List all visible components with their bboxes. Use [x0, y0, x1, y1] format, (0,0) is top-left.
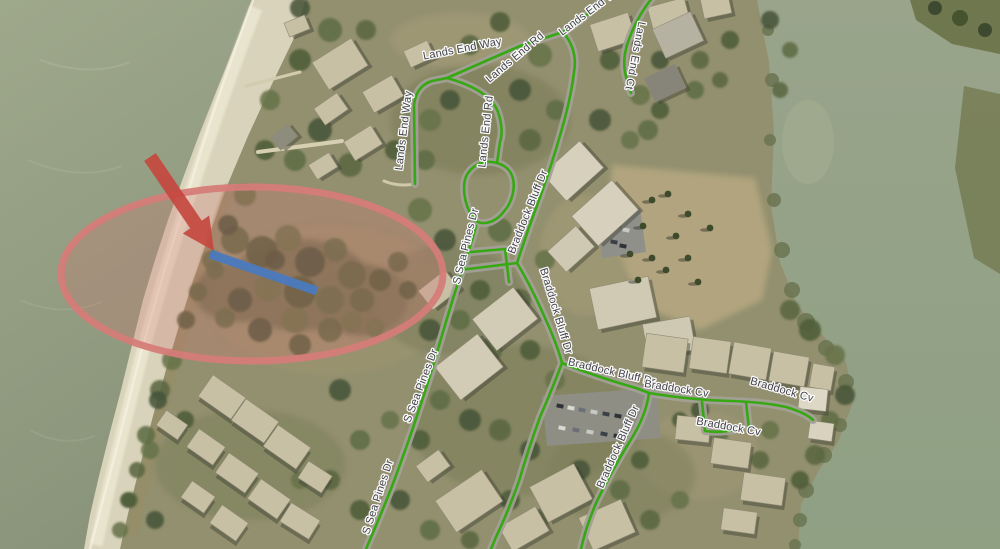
tree: [461, 531, 479, 549]
tree: [825, 345, 845, 365]
building: [729, 342, 772, 380]
tree: [761, 11, 779, 29]
tree: [129, 462, 145, 478]
tree: [610, 480, 630, 500]
map-canvas: Lands End Way Lands End Way Lands End Wa…: [0, 0, 1000, 549]
tree: [805, 445, 825, 465]
tree: [489, 419, 511, 441]
tree: [631, 451, 649, 469]
tree: [350, 430, 370, 450]
tree: [782, 42, 798, 58]
tree: [772, 82, 788, 98]
tree: [289, 49, 311, 71]
tree: [638, 120, 658, 140]
tree: [408, 198, 432, 222]
marsh-patch: [767, 193, 781, 207]
palm-tree: [635, 277, 642, 284]
tree: [120, 492, 136, 508]
tree: [490, 12, 510, 32]
palm-tree: [649, 197, 656, 204]
tree: [146, 511, 164, 529]
building: [740, 472, 785, 506]
palm-tree: [695, 279, 702, 286]
tree: [519, 129, 541, 151]
tree: [420, 520, 440, 540]
tree: [721, 31, 739, 49]
palm-tree: [649, 255, 656, 262]
palm-tree: [627, 251, 634, 258]
tree: [440, 90, 460, 110]
palm-tree: [685, 211, 692, 218]
marsh-patch: [774, 242, 790, 258]
palm-tree: [663, 267, 670, 274]
tree: [356, 20, 376, 40]
building: [721, 508, 758, 535]
tree: [509, 79, 531, 101]
tree: [329, 379, 351, 401]
tree: [450, 310, 470, 330]
tree: [284, 149, 306, 171]
tree: [112, 522, 128, 538]
tree: [835, 385, 855, 405]
tree: [751, 451, 769, 469]
tree: [470, 280, 490, 300]
tree: [640, 510, 660, 530]
tree: [712, 72, 728, 88]
tree: [318, 18, 342, 42]
marsh-patch: [793, 513, 807, 527]
palm-tree: [640, 223, 647, 230]
tree: [799, 319, 821, 341]
building: [689, 337, 731, 374]
tree: [791, 471, 809, 489]
tree: [589, 109, 611, 131]
palm-tree: [665, 191, 672, 198]
tree: [459, 409, 481, 431]
tree: [149, 391, 167, 409]
tree: [381, 411, 399, 429]
tree: [419, 109, 441, 131]
tree: [137, 426, 155, 444]
tree: [671, 491, 689, 509]
palm-tree: [685, 255, 692, 262]
tree: [430, 390, 450, 410]
tree: [260, 90, 280, 110]
marsh-patch: [764, 134, 776, 146]
tree: [780, 300, 800, 320]
building: [710, 437, 751, 468]
tree: [520, 340, 540, 360]
tree: [621, 131, 639, 149]
building: [642, 333, 688, 373]
palm-tree: [707, 225, 714, 232]
aerial-map[interactable]: Lands End Way Lands End Way Lands End Wa…: [0, 0, 1000, 549]
building: [809, 363, 835, 390]
palm-tree: [673, 233, 680, 240]
marsh-patch: [784, 282, 800, 298]
tree: [761, 421, 779, 439]
tree: [691, 51, 709, 69]
